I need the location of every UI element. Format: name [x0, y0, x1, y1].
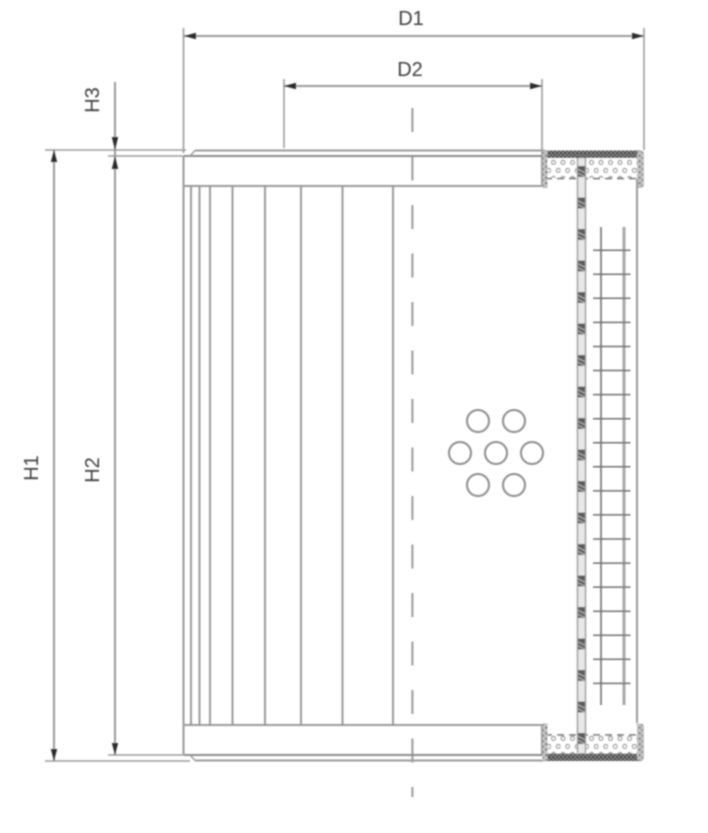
- svg-text:D1: D1: [398, 8, 424, 30]
- svg-text:H1: H1: [21, 455, 43, 481]
- svg-text:H3: H3: [82, 87, 104, 113]
- svg-text:D2: D2: [397, 59, 423, 81]
- svg-text:H2: H2: [82, 457, 104, 483]
